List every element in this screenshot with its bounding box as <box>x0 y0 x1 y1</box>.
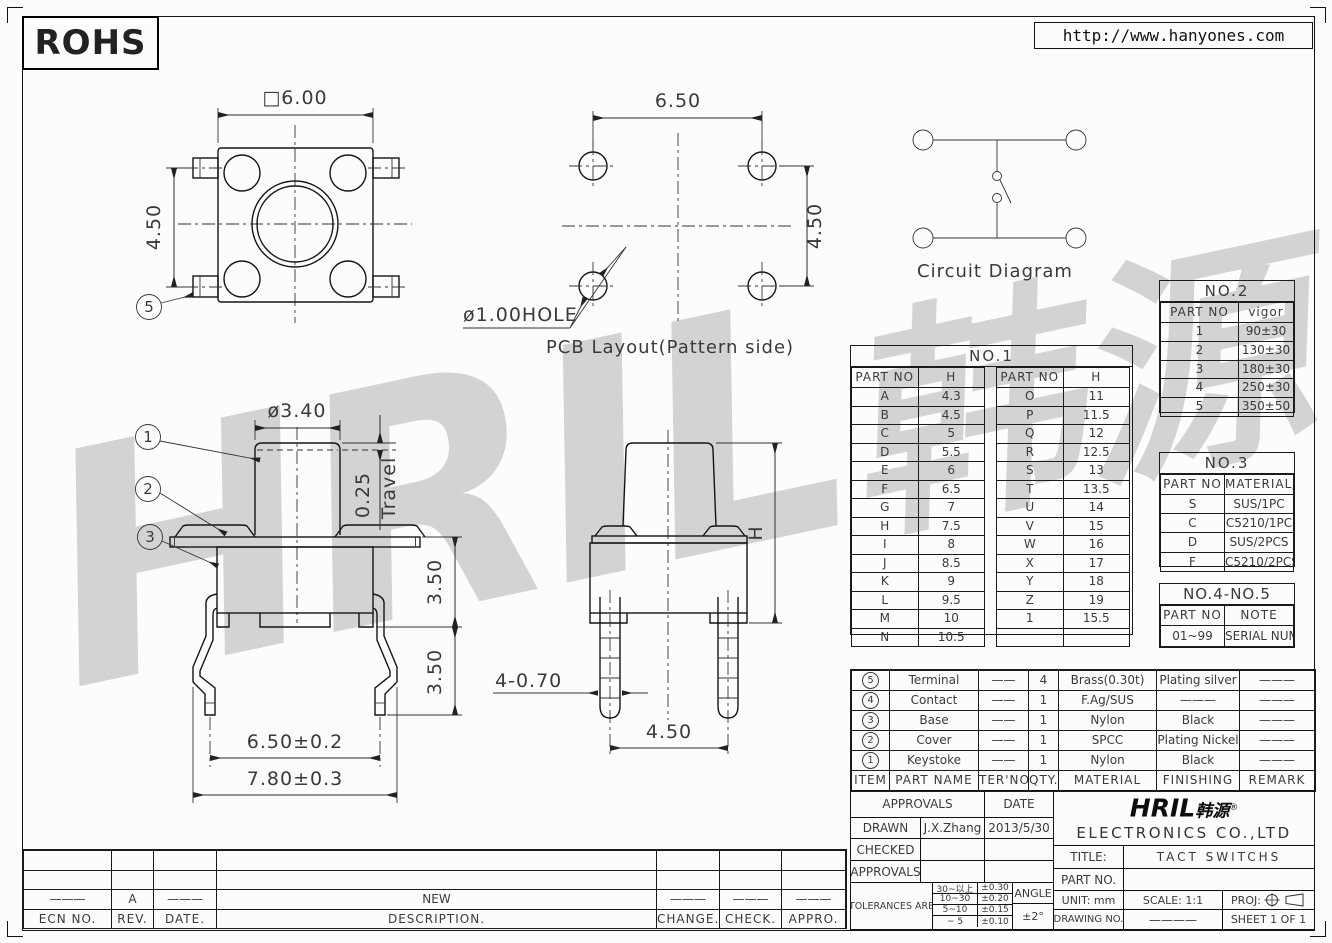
callout-3: 3 <box>145 528 155 546</box>
table-row: V15 <box>997 517 1130 536</box>
dim-cap-dia: ø3.40 <box>268 400 327 422</box>
table-title: NO.2 <box>1160 281 1294 302</box>
dim-top-width: □6.00 <box>262 87 327 109</box>
table-title: NO.1 <box>851 346 1132 367</box>
table-row: CC5210/1PC <box>1161 514 1294 533</box>
angle-label: ANGLE <box>1013 883 1053 904</box>
table-row: B4.5 <box>852 406 985 425</box>
table-row: F6.5 <box>852 480 985 499</box>
table-title: NO.4-NO.5 <box>1160 584 1294 605</box>
partno-label: PART NO. <box>1054 869 1124 891</box>
circuit-diagram-view: Circuit Diagram <box>890 105 1120 290</box>
table-row: P11.5 <box>997 406 1130 425</box>
title-block: APPROVALS DATE DRAWN J.X.Zhang 2013/5/30… <box>850 790 1315 930</box>
table-row: 115.5 <box>997 610 1130 629</box>
table-row: T13.5 <box>997 480 1130 499</box>
circuit-caption: Circuit Diagram <box>917 261 1073 282</box>
table-row: I8 <box>852 536 985 555</box>
dim-body-height: 3.50 <box>424 559 446 605</box>
table-row: Z19 <box>997 591 1130 610</box>
url-box: http://www.hanyones.com <box>1034 22 1313 49</box>
top-view: □6.00 4.50 5 <box>130 85 410 330</box>
table-row: M10 <box>852 610 985 629</box>
table-row: G7 <box>852 499 985 518</box>
drawing-sheet: HRIL韩源 ROHS http://www.hanyones.com □6.0… <box>0 0 1332 943</box>
projection: PROJ: <box>1223 891 1314 910</box>
table-row: N10.5 <box>852 628 985 647</box>
title-label: TITLE: <box>1054 846 1124 869</box>
table-no1: NO.1 PART NOH A4.3 B4.5 C5 D5.5 E6 F6.5 … <box>850 345 1133 635</box>
table-row: L9.5 <box>852 591 985 610</box>
revision-row <box>24 870 846 890</box>
table-row <box>997 628 1130 647</box>
bom-row: 4Contact——1F.Ag/SUS—————— <box>852 691 1315 711</box>
dim-travel-value: 0.25 <box>352 472 374 518</box>
callout-5: 5 <box>144 298 154 316</box>
revision-row <box>24 851 846 871</box>
table-row: U14 <box>997 499 1130 518</box>
table-no3: NO.3 PART NOMATERIAL/QTY SSUS/1PC CC5210… <box>1159 452 1295 567</box>
drawn-label: DRAWN <box>851 818 921 839</box>
table-row: D5.5 <box>852 443 985 462</box>
table-title: NO.3 <box>1160 453 1294 474</box>
scale: SCALE: 1:1 <box>1124 891 1223 910</box>
callout-2: 2 <box>143 480 153 498</box>
table-row: J8.5 <box>852 554 985 573</box>
table-row: 2130±30 <box>1161 341 1294 360</box>
table-row: SSUS/1PC <box>1161 495 1294 514</box>
tolerances-label: TOLERANCES ARE <box>851 883 933 929</box>
rohs-badge: ROHS <box>22 16 159 70</box>
table-row: K9 <box>852 573 985 592</box>
dim-pcb-height: 4.50 <box>804 203 826 249</box>
crop-mark <box>7 7 23 23</box>
company-logo: HRIL韩源® ELECTRONICS CO.,LTD <box>1054 791 1314 846</box>
table-row: O11 <box>997 388 1130 407</box>
table-row: W16 <box>997 536 1130 555</box>
callout-1: 1 <box>143 428 153 446</box>
table-row: C5 <box>852 425 985 444</box>
dim-leg-height: 3.50 <box>424 649 446 695</box>
bom-row: 3Base——1NylonBlack——— <box>852 711 1315 731</box>
table-row: Y18 <box>997 573 1130 592</box>
dim-overall-width: 7.80±0.3 <box>247 768 343 790</box>
table-row: S13 <box>997 462 1130 481</box>
table-row: X17 <box>997 554 1130 573</box>
hole-label: ø1.00HOLE <box>463 304 578 326</box>
pcb-layout-view: 6.50 4.50 ø1.00HOLE PCB Layout(Pattern s… <box>430 85 830 370</box>
date-header: DATE <box>985 791 1053 818</box>
tolerance-table: 30~以上±0.30 10~30±0.20 5~10±0.15 ~ 5±0.10 <box>933 883 1013 929</box>
checked-label: CHECKED <box>851 839 921 861</box>
table-no2: NO.2 PART NOvigor 190±30 2130±30 3180±30… <box>1159 280 1295 413</box>
bom-row: 1Keystoke——1NylonBlack——— <box>852 751 1315 771</box>
side-view: ø3.40 0.25 Travel 3.50 3.50 6.50±0.2 7.8… <box>100 395 480 815</box>
approvals-header: APPROVALS <box>851 791 985 818</box>
table-row: H7.5 <box>852 517 985 536</box>
bom-row: 2Cover——1SPCCPlating Nickel——— <box>852 731 1315 751</box>
partno-value <box>1124 869 1314 891</box>
table-row: FC5210/2PCS <box>1161 552 1294 571</box>
unit: UNIT: mm <box>1054 891 1124 910</box>
sheet-label: SHEET 1 OF 1 <box>1223 910 1314 929</box>
dim-pin-pitch: 4.50 <box>646 721 692 743</box>
table-row: R12.5 <box>997 443 1130 462</box>
dim-pin-width: 4-0.70 <box>495 670 562 692</box>
drawn-by: J.X.Zhang <box>921 818 985 839</box>
bom-row: 5Terminal——4Brass(0.30t)Plating silver——… <box>852 671 1315 691</box>
drawing-title: TACT SWITCHS <box>1124 846 1314 869</box>
dim-top-height: 4.50 <box>143 204 165 250</box>
crop-mark <box>7 921 23 937</box>
dim-h: H <box>745 525 767 540</box>
travel-label: Travel <box>378 457 400 520</box>
table-row: 01~99SERIAL NUMBER <box>1161 626 1294 647</box>
revision-table: ———A———NEW————————— ECN NO.REV.DATE.DESC… <box>22 849 847 929</box>
table-row: DSUS/2PCS <box>1161 533 1294 552</box>
drawn-date: 2013/5/30 <box>985 818 1053 839</box>
revision-row: ———A———NEW————————— <box>24 890 846 910</box>
table-row: Q12 <box>997 425 1130 444</box>
pcb-caption: PCB Layout(Pattern side) <box>546 337 794 358</box>
angle-value: ±2° <box>1013 904 1053 929</box>
drawingno-label: DRAWING NO. <box>1054 910 1124 929</box>
projection-symbol <box>1264 893 1306 907</box>
table-row: 5350±50 <box>1161 398 1294 417</box>
drawingno-value: ———— <box>1124 910 1223 929</box>
approvals-label: APPROVALS <box>851 861 921 883</box>
dim-pcb-width: 6.50 <box>655 90 701 112</box>
dim-pin-span: 6.50±0.2 <box>247 731 343 753</box>
revision-header-row: ECN NO.REV.DATE.DESCRIPTION.CHANGE.CHECK… <box>24 909 846 929</box>
bom-table: 5Terminal——4Brass(0.30t)Plating silver——… <box>850 669 1316 792</box>
table-no45: NO.4-NO.5 PART NONOTE 01~99SERIAL NUMBER <box>1159 583 1295 648</box>
table-row: 3180±30 <box>1161 360 1294 379</box>
table-row: A4.3 <box>852 388 985 407</box>
table-row: E6 <box>852 462 985 481</box>
table-row: 4250±30 <box>1161 379 1294 398</box>
bom-header-row: ITEMPART NAMETER'NO.QTY.MATERIALFINISHIN… <box>852 771 1315 791</box>
company-name: ELECTRONICS CO.,LTD <box>1076 825 1291 841</box>
front-view: H 4-0.70 4.50 <box>480 400 820 765</box>
table-row: 190±30 <box>1161 323 1294 342</box>
